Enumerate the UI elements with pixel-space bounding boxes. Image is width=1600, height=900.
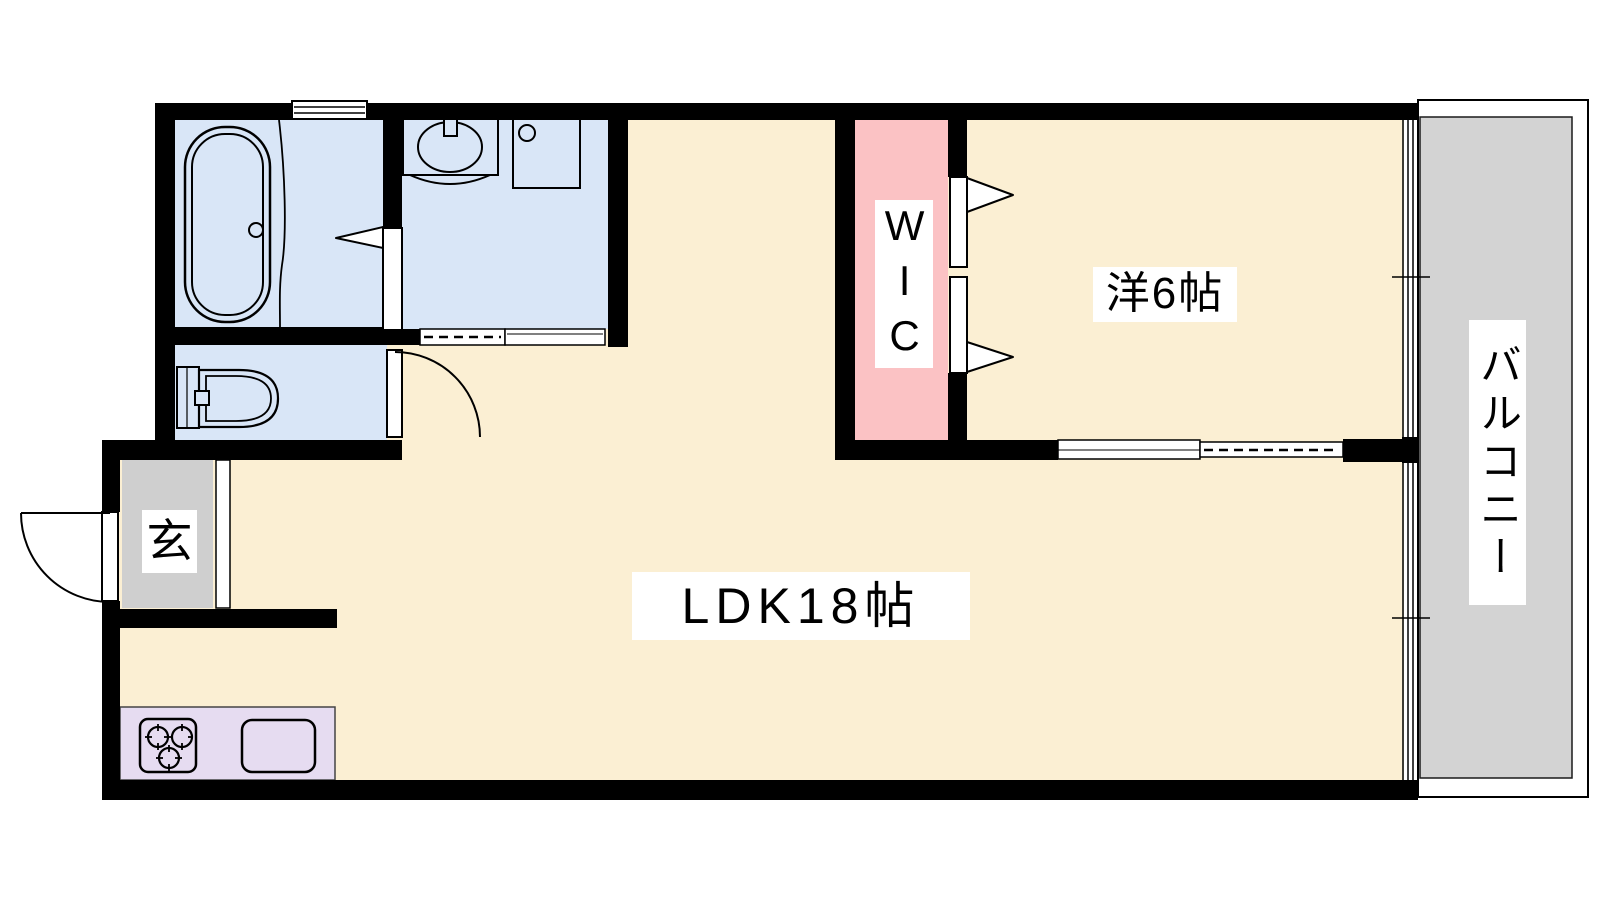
washroom-sliding-door [420, 329, 605, 345]
bedroom-sliding-door [1058, 440, 1343, 459]
room-label-wic: WIC [875, 200, 933, 368]
room-label-balcony: バルコニー [1469, 320, 1526, 605]
room-label-entrance: 玄 [142, 510, 197, 573]
room-label-ldk: LDK18帖 [632, 572, 970, 640]
entrance-door [21, 512, 118, 602]
bathroom-window [292, 101, 367, 119]
floor-plan-drawing [0, 0, 1600, 900]
room-label-bedroom: 洋6帖 [1093, 267, 1237, 322]
floor-plan: LDK18帖 洋6帖 WIC バルコニー 玄 [0, 0, 1600, 900]
entrance-step [216, 460, 230, 608]
washroom-area [402, 117, 608, 329]
bathroom-area [175, 120, 383, 327]
